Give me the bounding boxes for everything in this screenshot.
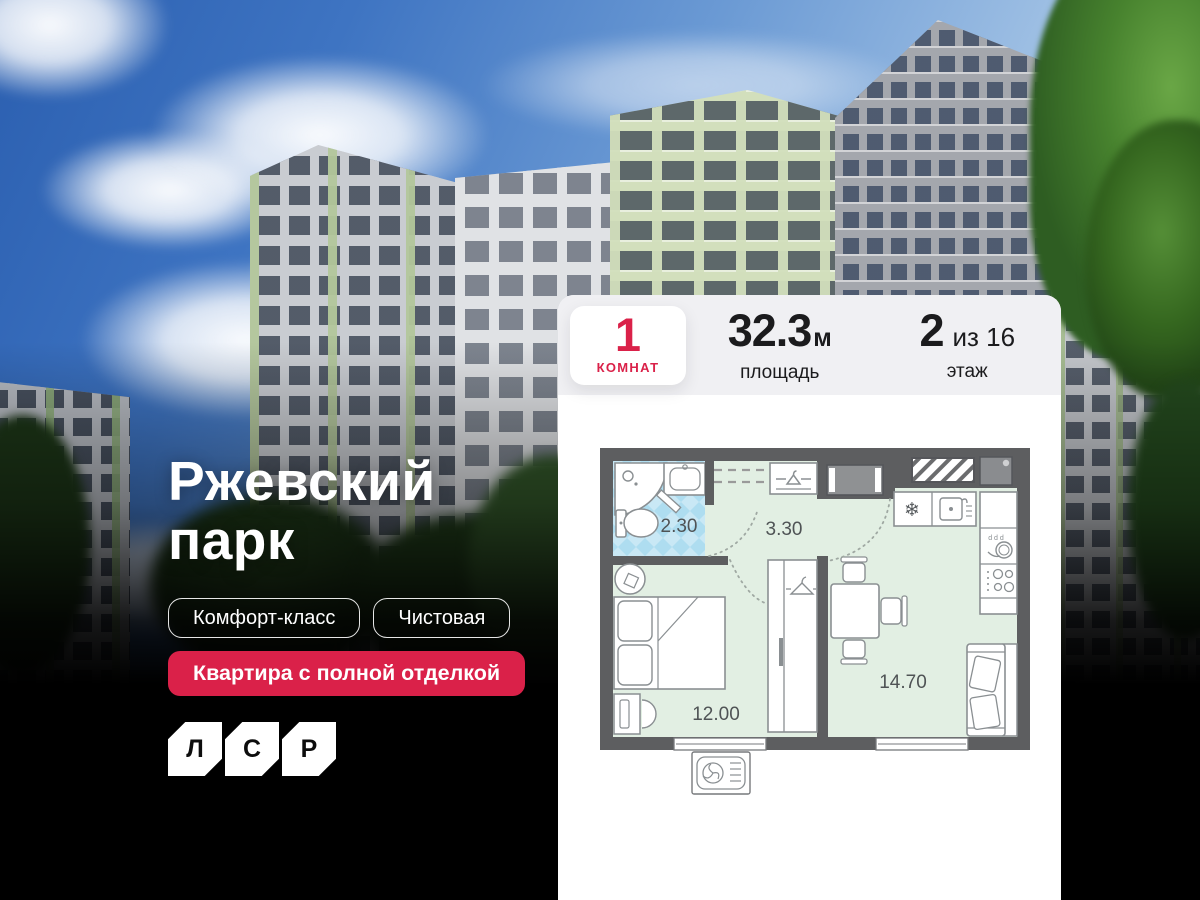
lsr-logo-tile-r: Р [282,722,336,776]
bedroom-area-label: 12.00 [692,704,740,725]
real-estate-ad: Ржевский парк Комфорт-класс Чистовая Ква… [0,0,1200,900]
lsr-logo-tile-l: Л [168,722,222,776]
project-title-line2: парк [168,511,525,570]
floor-stat: 2 из 16 этаж [874,295,1062,395]
window [876,738,968,750]
rooms-count: 1 [615,311,641,359]
badge-finish-type[interactable]: Чистовая [373,598,510,638]
apartment-summary: 1 КОМНАТ 32.3 м площадь 2 из 16 этаж [558,295,1061,395]
badge-full-finish[interactable]: Квартира с полной отделкой [168,651,525,696]
floor-plan: ❄ d d d [600,448,1030,798]
lsr-logo-tile-s: С [225,722,279,776]
window [674,738,766,750]
ac-unit-icon [692,752,750,794]
badge-comfort-class[interactable]: Комфорт-класс [168,598,360,638]
entrance-door [827,465,883,495]
badge-row: Комфорт-класс Чистовая [168,598,525,638]
area-label: площадь [740,362,819,384]
floor-value: 2 [919,308,943,354]
apartment-card: 1 КОМНАТ 32.3 м площадь 2 из 16 этаж [558,295,1061,900]
project-title: Ржевский парк [168,452,525,570]
toilet-icon [616,509,658,537]
washing-machine-icon [770,463,817,494]
area-value-row: 32.3 м [728,308,832,361]
area-unit: м [813,315,832,361]
svg-text:❄: ❄ [904,500,920,521]
hallway-area-label: 3.30 [766,519,803,540]
floor-label: этаж [947,361,988,383]
wardrobe-icon [768,560,817,732]
rooms-chip: 1 КОМНАТ [570,306,686,385]
floor-plan-svg: ❄ d d d [600,448,1030,798]
sink-icon [664,463,705,495]
floor-value-row: 2 из 16 [919,308,1015,360]
area-stat: 32.3 м площадь [686,295,874,395]
living-area-label: 14.70 [879,672,927,693]
lsr-logo: Л С Р [168,722,525,776]
bed-icon [614,597,725,689]
bathroom-area-label: 2.30 [661,516,698,537]
project-title-line1: Ржевский [168,452,525,511]
fridge-snowflake-icon: ❄ [904,500,920,521]
shaft-box [980,457,1012,485]
rooms-label: КОМНАТ [597,360,660,375]
bedside-table-icon [615,564,645,594]
bathroom [613,461,705,556]
hero-block: Ржевский парк Комфорт-класс Чистовая Ква… [168,452,525,776]
floor-of-total: из 16 [952,314,1015,360]
area-value: 32.3 [728,308,812,354]
vent-shaft-hatched [912,458,974,482]
svg-text:d d d: d d d [988,535,1004,542]
sofa-icon [967,644,1017,736]
